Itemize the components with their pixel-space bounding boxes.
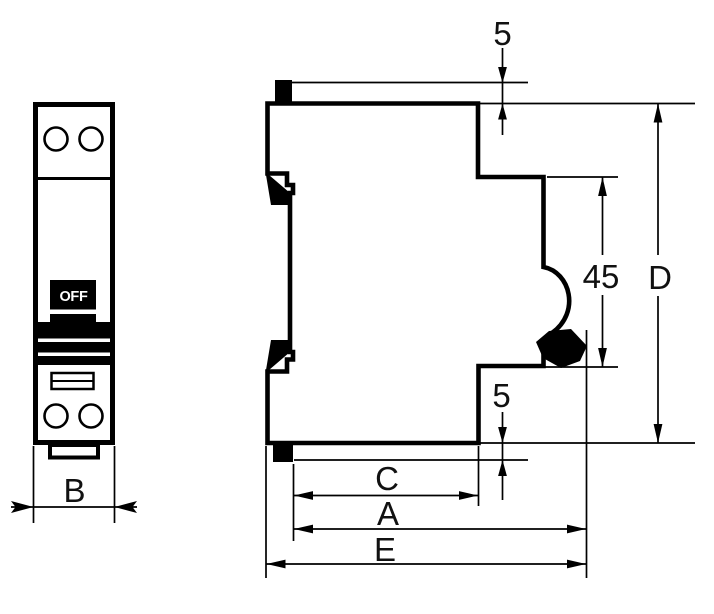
dimE-arrow-right — [567, 560, 586, 569]
toggle-knob-gap — [50, 310, 96, 315]
breaker-front-body — [36, 105, 113, 443]
dim-label-45: 45 — [583, 258, 620, 295]
dimC-arrow-left — [294, 491, 313, 500]
top5-arrow-down — [498, 67, 507, 83]
front-view: OFF B — [11, 105, 137, 524]
mount-tab-bottom — [273, 443, 293, 462]
mount-tab-top — [275, 80, 292, 103]
dim-label-c: C — [375, 460, 399, 497]
dimC-arrow-right — [459, 491, 478, 500]
dim-label-a: A — [377, 495, 399, 532]
toggle-side-slot-left — [38, 280, 50, 322]
toggle-switch: OFF — [38, 280, 110, 365]
top5-arrow-up — [498, 104, 507, 120]
dimA-arrow-right — [567, 525, 586, 534]
dim-label-e: E — [374, 531, 396, 568]
toggle-stripe-2 — [38, 353, 110, 357]
dim45-arrow-down — [598, 348, 607, 367]
bot5-arrow-down — [498, 427, 507, 443]
side-view: 5 45 D 5 C — [266, 15, 696, 578]
dimension-e: E — [266, 531, 587, 568]
front-bottom-tab — [50, 445, 98, 458]
terminal-screw-top-left — [45, 128, 68, 151]
dimD-arrow-down — [654, 424, 663, 443]
dimension-d: D — [648, 104, 672, 444]
terminal-screw-bottom-left — [45, 405, 68, 428]
technical-drawing: OFF B — [0, 0, 714, 614]
dimension-bottom-5: 5 — [492, 377, 510, 500]
terminal-screw-bottom-right — [80, 405, 103, 428]
dimension-top-5: 5 — [493, 15, 511, 135]
dim-label-top-5: 5 — [493, 15, 511, 52]
dim-label-bottom-5: 5 — [492, 377, 510, 414]
terminal-screw-top-right — [80, 128, 103, 151]
dimension-c: C — [294, 460, 479, 500]
dim-label-b: B — [63, 472, 85, 509]
dimension-45: 45 — [583, 177, 620, 367]
dim45-arrow-up — [598, 177, 607, 196]
toggle-stripe-1 — [38, 339, 110, 343]
toggle-side-slot-right — [96, 280, 110, 322]
toggle-off-label: OFF — [59, 289, 88, 305]
bot5-arrow-up — [498, 460, 507, 476]
dimA-arrow-left — [294, 525, 313, 534]
dimE-arrow-left — [267, 560, 286, 569]
breaker-side-profile — [268, 104, 570, 444]
dim-label-d: D — [648, 259, 672, 296]
dimension-a: A — [294, 495, 587, 533]
dimD-arrow-up — [654, 104, 663, 123]
